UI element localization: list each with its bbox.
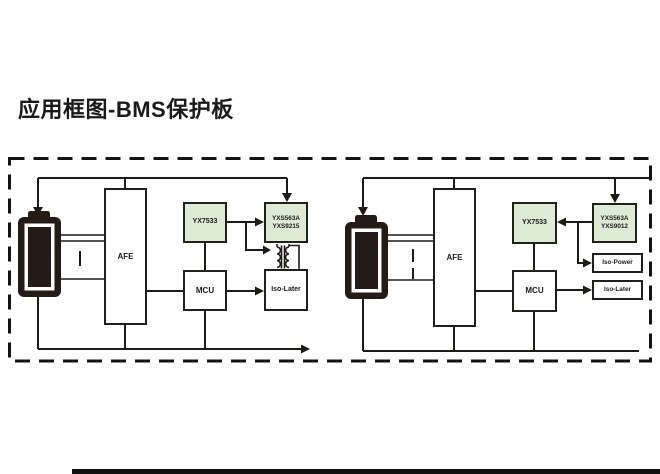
mcu-label: MCU xyxy=(525,286,543,296)
chip-label-line2: YXS9012 xyxy=(601,223,628,231)
chip-label-line2: YXS9215 xyxy=(272,223,299,231)
chip-label-line1: YXS563A xyxy=(600,215,628,223)
chip-label: YX7533 xyxy=(522,219,547,228)
afe-label: AFE xyxy=(447,253,463,263)
afe-block: AFE xyxy=(433,188,476,327)
arrowhead xyxy=(358,207,368,216)
isolator-chip-block: YXS563A YXS9215 xyxy=(264,202,308,243)
iso-power-label: Iso-Power xyxy=(602,259,633,267)
afe-block: AFE xyxy=(104,188,147,325)
arrowhead xyxy=(557,218,566,227)
battery-icon xyxy=(18,211,61,297)
afe-label: AFE xyxy=(118,252,134,262)
chip-label-line1: YXS563A xyxy=(272,215,300,223)
transformer-icon xyxy=(277,244,299,269)
iso-later-label: Iso-Later xyxy=(604,286,631,294)
iso-later-label: Iso-Later xyxy=(271,286,301,295)
iso-power-block: Iso-Power xyxy=(592,253,643,273)
isolator-chip-block: YXS563A YXS9012 xyxy=(592,203,637,243)
arrowhead xyxy=(301,345,310,354)
mcu-block: MCU xyxy=(512,270,557,312)
arrowhead xyxy=(583,259,592,268)
arrowhead xyxy=(610,194,620,203)
diagram-canvas xyxy=(0,0,660,474)
arrowhead xyxy=(255,218,264,227)
arrowhead xyxy=(583,286,592,295)
iso-later-block: Iso-Later xyxy=(592,280,643,300)
slide: 应用框图-BMS保护板 xyxy=(0,0,660,474)
ldo-block-yx7533: YX7533 xyxy=(512,202,557,244)
iso-later-block: Iso-Later xyxy=(264,269,308,311)
mcu-label: MCU xyxy=(196,286,214,296)
arrowhead xyxy=(282,193,292,202)
ldo-block-yx7533: YX7533 xyxy=(183,202,227,243)
arrowhead xyxy=(255,287,264,296)
chip-label: YX7533 xyxy=(193,218,218,227)
arrowhead xyxy=(263,246,271,255)
battery-icon xyxy=(345,215,388,299)
bottom-border-bar xyxy=(72,469,660,474)
mcu-block: MCU xyxy=(183,270,227,311)
